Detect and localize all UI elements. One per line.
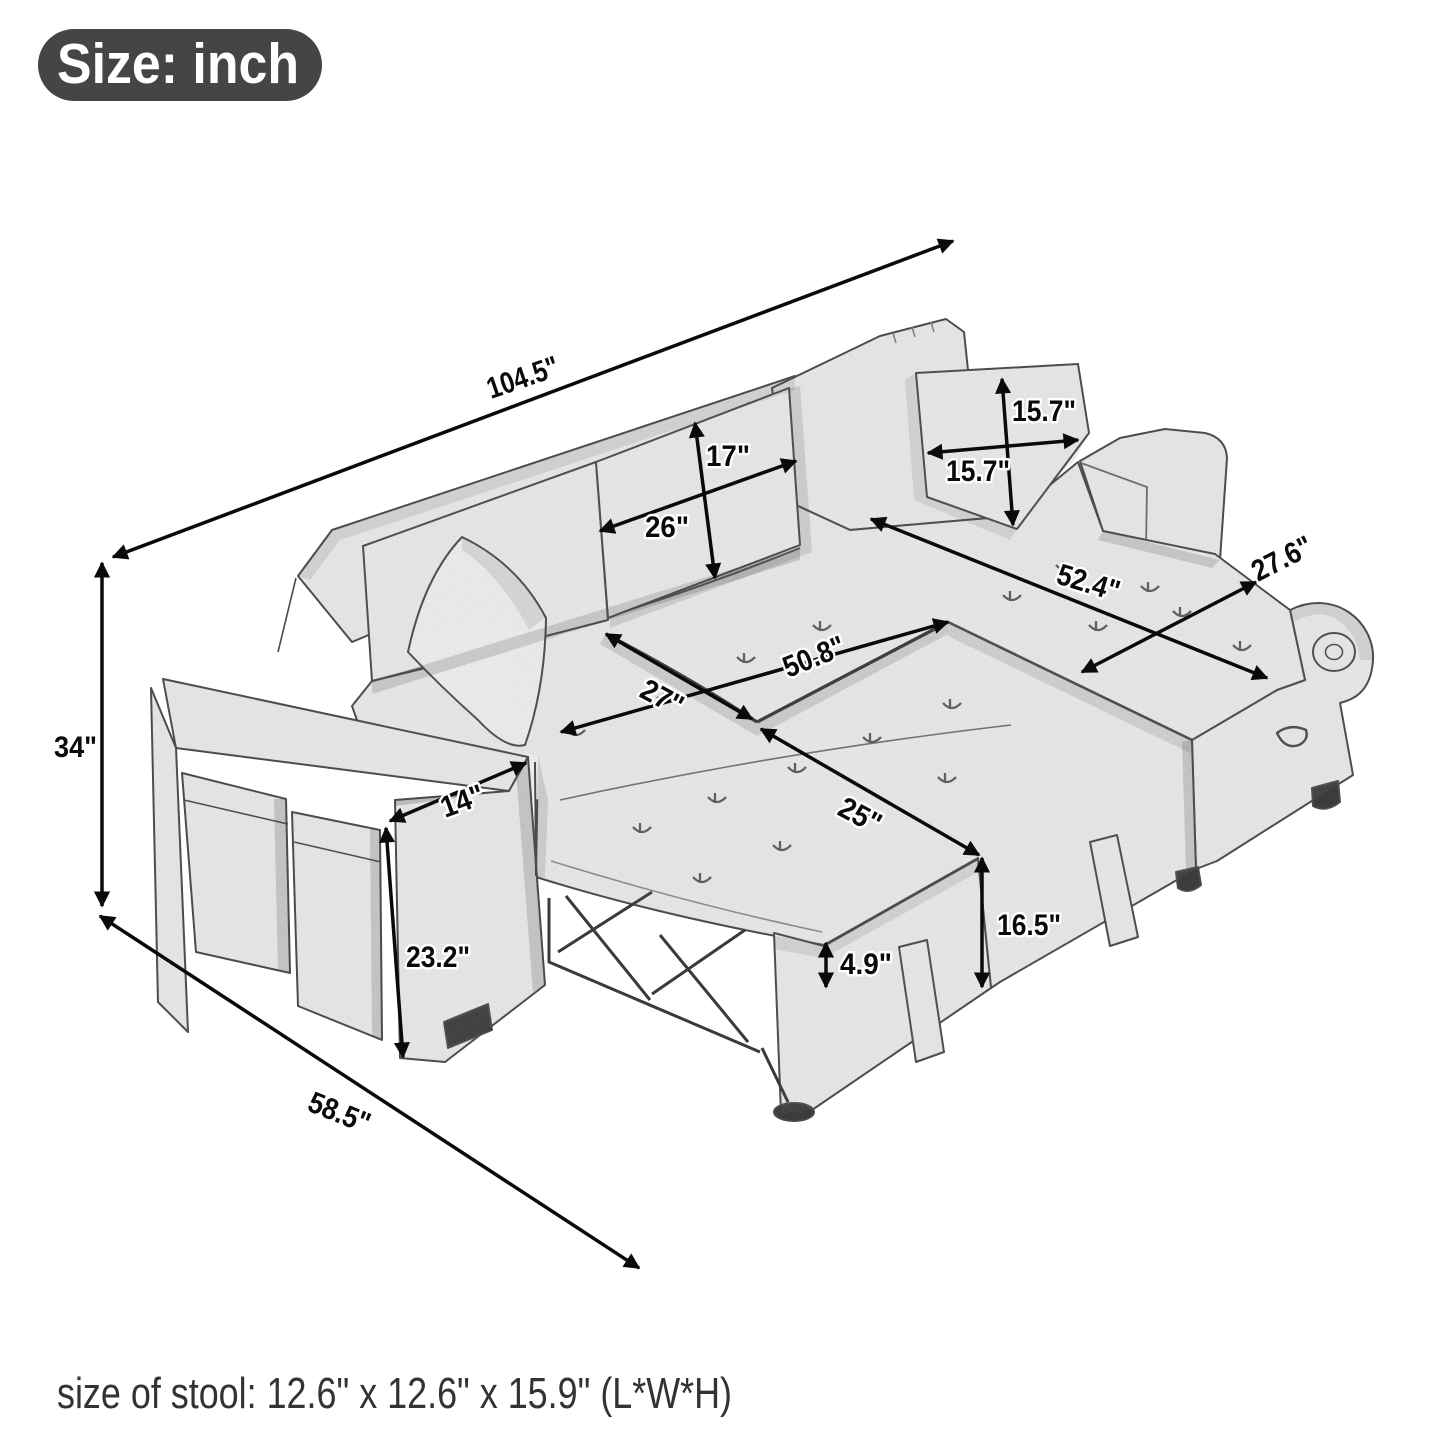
svg-text:Size: inch: Size: inch [57, 32, 299, 96]
svg-text:34": 34" [54, 731, 97, 764]
svg-text:4.9": 4.9" [840, 948, 892, 981]
svg-text:27.6": 27.6" [1246, 530, 1318, 588]
svg-text:16.5": 16.5" [997, 909, 1061, 942]
svg-text:size of stool: 12.6" x 12.6" x: size of stool: 12.6" x 12.6" x 15.9" (L*… [57, 1369, 732, 1418]
svg-text:26": 26" [645, 511, 689, 544]
svg-text:15.7": 15.7" [1012, 395, 1076, 428]
svg-text:23.2": 23.2" [406, 941, 470, 974]
svg-text:58.5": 58.5" [303, 1086, 375, 1141]
svg-text:15.7": 15.7" [946, 455, 1010, 488]
svg-text:104.5": 104.5" [483, 350, 564, 405]
svg-text:17": 17" [706, 440, 750, 473]
